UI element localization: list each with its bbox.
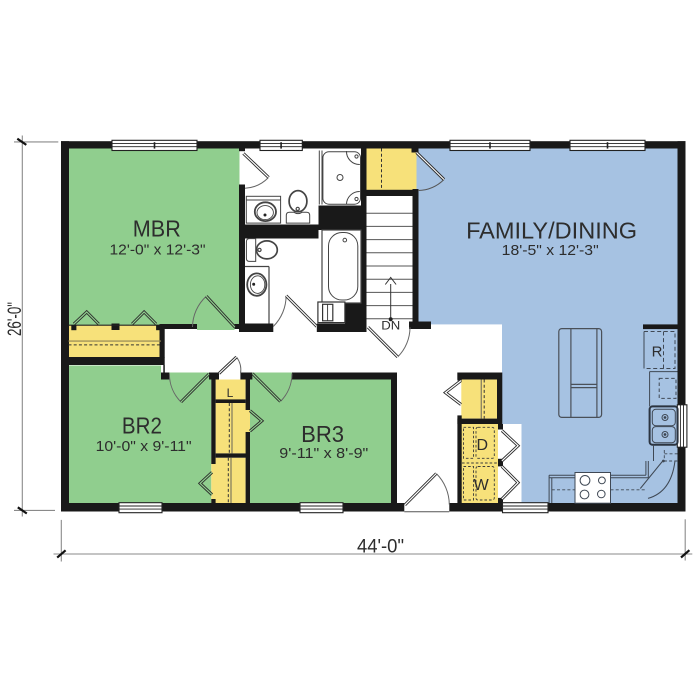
svg-text:26'-0": 26'-0" <box>5 302 26 336</box>
svg-text:FAMILY/DINING: FAMILY/DINING <box>466 217 637 243</box>
svg-text:W: W <box>474 477 490 494</box>
svg-text:DN: DN <box>381 321 400 333</box>
svg-text:18'-5" x 12'-3": 18'-5" x 12'-3" <box>502 242 599 259</box>
svg-text:44'-0": 44'-0" <box>357 537 404 558</box>
svg-text:12'-0" x 12'-3": 12'-0" x 12'-3" <box>110 241 206 258</box>
svg-text:R: R <box>652 344 663 361</box>
svg-text:BR2: BR2 <box>122 413 162 439</box>
svg-text:MBR: MBR <box>133 216 181 242</box>
svg-text:L: L <box>227 386 234 400</box>
svg-text:D: D <box>477 437 489 454</box>
svg-text:9'-11" x 8'-9": 9'-11" x 8'-9" <box>279 445 368 462</box>
svg-text:10'-0" x 9'-11": 10'-0" x 9'-11" <box>96 438 192 455</box>
svg-text:BR3: BR3 <box>301 421 344 447</box>
